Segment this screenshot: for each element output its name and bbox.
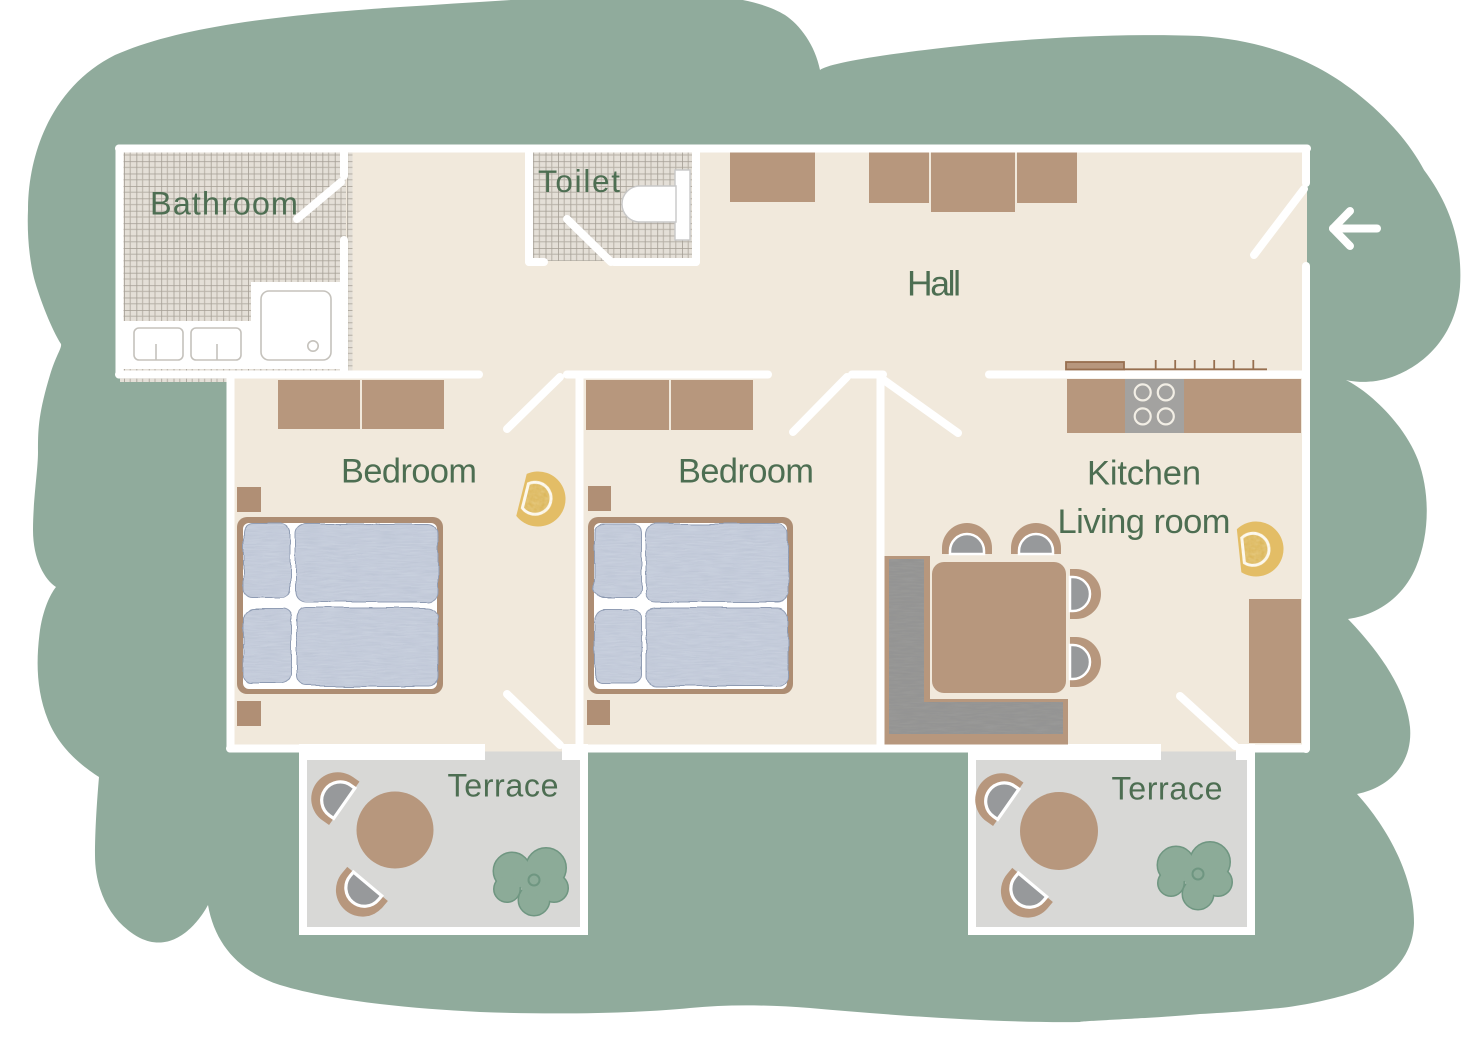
svg-text:Bedroom: Bedroom [341,453,477,491]
svg-text:Bathroom: Bathroom [150,186,298,222]
svg-text:Toilet: Toilet [538,163,620,199]
svg-text:Hall: Hall [907,264,961,304]
svg-text:Kitchen: Kitchen [1087,455,1201,493]
svg-text:Bedroom: Bedroom [678,453,814,491]
svg-text:Terrace: Terrace [1112,771,1223,807]
svg-text:Living room: Living room [1058,503,1231,541]
svg-text:Terrace: Terrace [448,767,559,803]
